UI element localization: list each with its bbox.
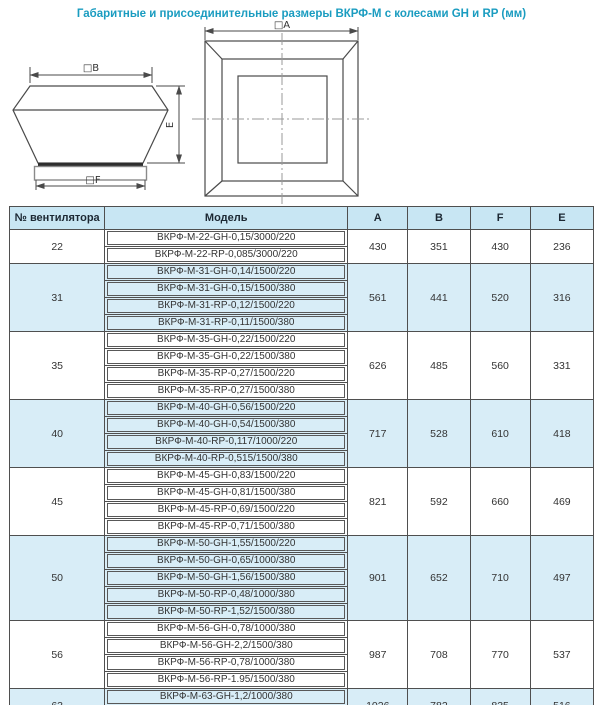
dim-e-value: 516: [530, 689, 593, 705]
dim-e-label: E: [165, 122, 176, 128]
dim-e-value: 497: [530, 536, 593, 621]
catalog-page: Габаритные и присоединительные размеры В…: [0, 0, 603, 705]
model-cell: ВКРФ-М-63-GH-1,2/1000/380: [107, 690, 345, 704]
model-row: 63 ВКРФ-М-63-GH-1,2/1000/380 1026 782 83…: [10, 689, 594, 705]
model-cell: ВКРФ-М-45-RP-0,71/1500/380: [107, 520, 345, 534]
model-row: 40 ВКРФ-М-40-GH-0,56/1500/220 717 528 61…: [10, 400, 594, 417]
model-cell: ВКРФ-М-31-RP-0,11/1500/380: [107, 316, 345, 330]
fan-number: 45: [10, 468, 105, 536]
fan-number: 35: [10, 332, 105, 400]
dim-f-value: 835: [470, 689, 530, 705]
dim-a-label: □A: [274, 20, 290, 31]
model-row: 45 ВКРФ-М-45-GH-0,83/1500/220 821 592 66…: [10, 468, 594, 485]
model-cell: ВКРФ-М-35-RP-0,27/1500/380: [107, 384, 345, 398]
dim-b-value: 485: [408, 332, 470, 400]
model-cell: ВКРФ-М-45-RP-0,69/1500/220: [107, 503, 345, 517]
dim-a-value: 821: [348, 468, 408, 536]
dim-e-value: 469: [530, 468, 593, 536]
dim-f-value: 610: [470, 400, 530, 468]
dim-b-value: 782: [408, 689, 470, 705]
dim-e-value: 331: [530, 332, 593, 400]
dimension-drawings: □B E □F: [0, 20, 603, 206]
dim-b-value: 441: [408, 264, 470, 332]
model-cell: ВКРФ-М-45-GH-0,83/1500/220: [107, 469, 345, 483]
header-dim-a: A: [348, 207, 408, 230]
model-cell: ВКРФ-М-40-RP-0,515/1500/380: [107, 452, 345, 466]
dim-a-value: 901: [348, 536, 408, 621]
header-model: Модель: [105, 207, 348, 230]
model-cell: ВКРФ-М-35-RP-0,27/1500/220: [107, 367, 345, 381]
model-cell: ВКРФ-М-56-GH-0,78/1000/380: [107, 622, 345, 636]
model-cell: ВКРФ-М-50-RP-1,52/1500/380: [107, 605, 345, 619]
dim-a-value: 717: [348, 400, 408, 468]
page-title: Габаритные и присоединительные размеры В…: [0, 0, 603, 20]
dim-b-value: 652: [408, 536, 470, 621]
fan-housing-outline: [13, 86, 168, 163]
bevel-bottom-left: [205, 181, 222, 196]
model-cell: ВКРФ-М-31-GH-0,14/1500/220: [107, 265, 345, 279]
model-cell: ВКРФ-М-22-RP-0,085/3000/220: [107, 248, 345, 262]
bevel-top-right: [343, 41, 358, 59]
model-cell: ВКРФ-М-50-GH-1,56/1500/380: [107, 571, 345, 585]
dim-b-label: □B: [83, 63, 99, 74]
model-cell: ВКРФ-М-40-RP-0,117/1000/220: [107, 435, 345, 449]
bevel-bottom-right: [343, 181, 358, 196]
bevel-top-left: [205, 41, 222, 59]
fan-number: 31: [10, 264, 105, 332]
header-fan-number: № вентилятора: [10, 207, 105, 230]
model-cell: ВКРФ-М-22-GH-0,15/3000/220: [107, 231, 345, 245]
model-row: 31 ВКРФ-М-31-GH-0,14/1500/220 561 441 52…: [10, 264, 594, 281]
dim-e-value: 537: [530, 621, 593, 689]
dim-b-value: 528: [408, 400, 470, 468]
header-dim-b: B: [408, 207, 470, 230]
fan-group-31: 31 ВКРФ-М-31-GH-0,14/1500/220 561 441 52…: [10, 264, 594, 332]
fan-number: 40: [10, 400, 105, 468]
dim-b-value: 708: [408, 621, 470, 689]
table-header: № вентилятора Модель A B F E: [10, 207, 594, 230]
fan-number: 22: [10, 230, 105, 264]
model-cell: ВКРФ-М-31-RP-0,12/1500/220: [107, 299, 345, 313]
fan-number: 63: [10, 689, 105, 705]
fan-group-22: 22 ВКРФ-М-22-GH-0,15/3000/220 430 351 43…: [10, 230, 594, 264]
dim-e-value: 236: [530, 230, 593, 264]
model-cell: ВКРФ-М-56-GH-2,2/1500/380: [107, 639, 345, 653]
dim-a-value: 561: [348, 264, 408, 332]
model-row: 56 ВКРФ-М-56-GH-0,78/1000/380 987 708 77…: [10, 621, 594, 638]
model-cell: ВКРФ-М-35-GH-0,22/1500/220: [107, 333, 345, 347]
dim-b-value: 351: [408, 230, 470, 264]
fan-group-35: 35 ВКРФ-М-35-GH-0,22/1500/220 626 485 56…: [10, 332, 594, 400]
centerlines: [192, 33, 372, 204]
dim-f-value: 770: [470, 621, 530, 689]
dim-f-value: 560: [470, 332, 530, 400]
model-cell: ВКРФ-М-56-RP-0,78/1000/380: [107, 656, 345, 670]
side-view-drawing: [13, 86, 168, 180]
fan-group-40: 40 ВКРФ-М-40-GH-0,56/1500/220 717 528 61…: [10, 400, 594, 468]
header-dim-e: E: [530, 207, 593, 230]
fan-number: 50: [10, 536, 105, 621]
model-cell: ВКРФ-М-56-RP-1.95/1500/380: [107, 673, 345, 687]
model-cell: ВКРФ-М-45-GH-0,81/1500/380: [107, 486, 345, 500]
dim-f-label: □F: [85, 175, 100, 186]
model-cell: ВКРФ-М-40-GH-0,56/1500/220: [107, 401, 345, 415]
fan-group-45: 45 ВКРФ-М-45-GH-0,83/1500/220 821 592 66…: [10, 468, 594, 536]
model-cell: ВКРФ-М-40-GH-0,54/1500/380: [107, 418, 345, 432]
model-cell: ВКРФ-М-50-RP-0,48/1000/380: [107, 588, 345, 602]
dimensions-table: № вентилятора Модель A B F E 22 ВКРФ-М-2…: [9, 206, 594, 705]
fan-group-50: 50 ВКРФ-М-50-GH-1,55/1500/220 901 652 71…: [10, 536, 594, 621]
model-row: 22 ВКРФ-М-22-GH-0,15/3000/220 430 351 43…: [10, 230, 594, 247]
model-cell: ВКРФ-М-50-GH-0,65/1000/380: [107, 554, 345, 568]
dim-e-value: 418: [530, 400, 593, 468]
model-cell: ВКРФ-М-50-GH-1,55/1500/220: [107, 537, 345, 551]
dim-f-value: 660: [470, 468, 530, 536]
model-cell: ВКРФ-М-35-GH-0,22/1500/380: [107, 350, 345, 364]
model-row: 50 ВКРФ-М-50-GH-1,55/1500/220 901 652 71…: [10, 536, 594, 553]
dim-e-value: 316: [530, 264, 593, 332]
dim-f-value: 520: [470, 264, 530, 332]
fan-number: 56: [10, 621, 105, 689]
dim-f-value: 430: [470, 230, 530, 264]
dim-a-value: 987: [348, 621, 408, 689]
dim-b-value: 592: [408, 468, 470, 536]
dim-a-value: 430: [348, 230, 408, 264]
dim-a-value: 1026: [348, 689, 408, 705]
model-row: 35 ВКРФ-М-35-GH-0,22/1500/220 626 485 56…: [10, 332, 594, 349]
dim-a-value: 626: [348, 332, 408, 400]
dim-f-value: 710: [470, 536, 530, 621]
fan-group-56: 56 ВКРФ-М-56-GH-0,78/1000/380 987 708 77…: [10, 621, 594, 689]
header-dim-f: F: [470, 207, 530, 230]
model-cell: ВКРФ-М-31-GH-0,15/1500/380: [107, 282, 345, 296]
fan-group-63: 63 ВКРФ-М-63-GH-1,2/1000/380 1026 782 83…: [10, 689, 594, 705]
